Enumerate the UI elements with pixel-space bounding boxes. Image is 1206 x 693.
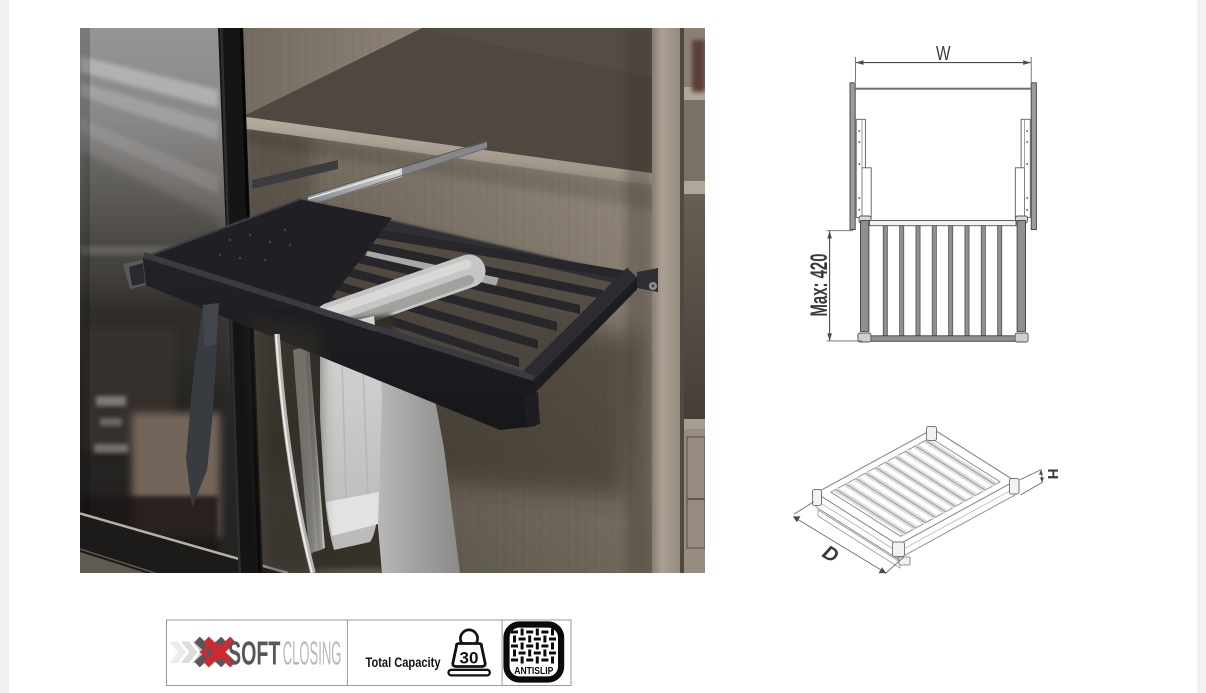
- svg-text:Max: 420: Max: 420: [806, 254, 833, 317]
- svg-text:SOFT: SOFT: [228, 635, 280, 672]
- svg-text:ANTISLIP: ANTISLIP: [514, 666, 553, 677]
- svg-text:D: D: [818, 541, 842, 567]
- svg-text:CLOSING: CLOSING: [283, 635, 342, 672]
- svg-text:Total Capacity: Total Capacity: [366, 655, 441, 670]
- svg-text:W: W: [936, 43, 951, 65]
- svg-text:H: H: [1044, 469, 1061, 480]
- svg-text:30: 30: [460, 649, 479, 668]
